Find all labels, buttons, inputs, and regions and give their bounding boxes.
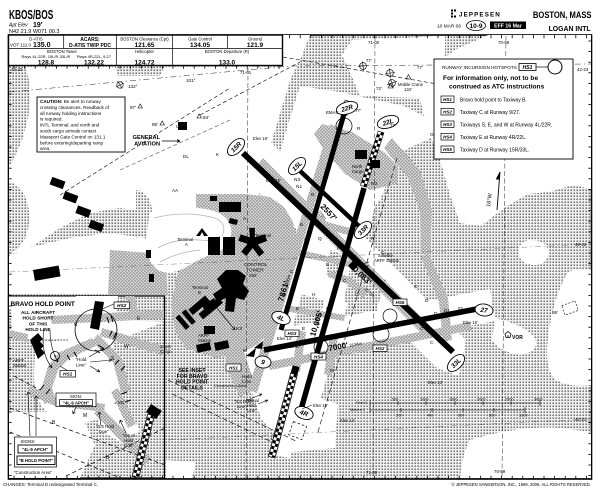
svg-text:HS1: HS1 [443,97,452,102]
svg-text:M1: M1 [118,400,125,405]
svg-text:BOSTON Departure (R): BOSTON Departure (R) [205,49,250,54]
svg-text:Line": Line" [99,429,109,434]
svg-text:O: O [304,237,308,243]
svg-text:Gate Control: Gate Control [188,37,212,42]
svg-text:1000: 1000 [519,414,527,418]
svg-text:M: M [83,413,87,419]
svg-text:"B HOLD POINT": "B HOLD POINT" [19,458,54,463]
svg-text:Cargo: Cargo [352,169,364,174]
svg-text:SIGNS:: SIGNS: [21,439,36,444]
svg-text:02: 02 [458,306,463,311]
svg-text:Helicopter: Helicopter [135,49,154,54]
svg-text:121.65: 121.65 [135,42,155,49]
svg-text:A: A [185,242,188,247]
svg-text:97': 97' [130,105,136,110]
svg-text:"Construction Area": "Construction Area" [14,470,52,475]
svg-text:70-59: 70-59 [498,40,510,45]
svg-text:all runway holding instruction: all runway holding instructions [40,111,102,116]
svg-text:HS2: HS2 [443,110,452,115]
svg-text:C: C [414,284,418,290]
svg-text:128.8: 128.8 [38,60,55,67]
svg-text:M: M [330,368,334,374]
svg-text:D: D [434,311,438,317]
svg-text:construed as ATC instructions: construed as ATC instructions [449,84,545,91]
svg-text:77': 77' [355,108,361,113]
svg-text:AVIATION: AVIATION [134,142,160,148]
svg-text:Line": Line" [124,443,134,448]
svg-text:C: C [290,269,294,275]
svg-text:Station: Station [198,338,212,343]
svg-text:CHANGES: Terminal D redesignat: CHANGES: Terminal D redesignated Termina… [3,482,98,487]
svg-text:K3: K3 [236,326,242,332]
svg-text:Ground: Ground [248,37,263,42]
svg-text:Line": Line" [237,404,247,409]
svg-text:F: F [337,246,340,252]
svg-text:D: D [425,298,429,304]
svg-text:HS1: HS1 [63,372,73,378]
svg-text:27: 27 [479,307,489,315]
svg-text:N42 21.9 W071 00.3: N42 21.9 W071 00.3 [9,29,59,35]
svg-text:"4L-9 APCH": "4L-9 APCH" [22,447,48,452]
svg-text:E: E [326,262,329,268]
svg-text:Taxiway E at Runway 4R/22L.: Taxiway E at Runway 4R/22L. [460,135,526,141]
svg-text:N: N [74,322,77,327]
svg-text:N3: N3 [371,181,377,187]
svg-text:84': 84' [203,115,209,120]
svg-text:HOLD SHORT: HOLD SHORT [23,316,54,321]
svg-text:72': 72' [376,86,382,91]
svg-text:500: 500 [392,398,398,402]
svg-text:before entering/departing ramp: before entering/departing ramp [40,140,104,145]
svg-text:US: US [176,124,182,129]
svg-text:Line": Line" [247,408,257,413]
svg-text:71-01: 71-01 [240,70,252,75]
svg-text:HOLD LINE: HOLD LINE [25,327,50,332]
svg-text:OF THIS: OF THIS [29,321,48,326]
svg-text:Elev 19': Elev 19' [253,136,268,141]
svg-text:42-23: 42-23 [11,67,23,72]
svg-text:Q: Q [318,236,322,242]
svg-text:Apt Elev: Apt Elev [8,23,28,29]
svg-text:Taxiways S, E, and W at Runway: Taxiways S, E, and W at Runway 4L/22R. [460,123,552,129]
svg-text:292': 292' [249,273,257,278]
svg-text:Elev 15': Elev 15' [463,320,478,325]
svg-text:SIGN:: SIGN: [70,394,82,399]
svg-text:132.22: 132.22 [84,60,104,67]
svg-text:Rwys 4R-22L, 9-27: Rwys 4R-22L, 9-27 [77,54,112,59]
svg-text:71-00: 71-00 [368,40,380,45]
svg-text:HS2: HS2 [376,346,385,351]
svg-text:C: C [326,306,330,312]
svg-text:2500: 2500 [505,398,513,402]
svg-text:N: N [330,158,334,164]
svg-text:134.05: 134.05 [190,42,210,49]
svg-text:HS1: HS1 [523,65,533,71]
svg-text:86': 86' [552,310,558,315]
svg-text:135.0: 135.0 [33,42,51,49]
svg-text:"Hold: "Hold [76,357,87,362]
svg-text:C: C [420,326,424,332]
svg-text:crossing clearances. Readback: crossing clearances. Readback of [40,105,110,110]
svg-text:E: E [296,306,299,312]
svg-text:W: W [124,344,129,350]
svg-text:C: C [430,340,434,346]
svg-text:Feet 0: Feet 0 [356,401,367,405]
svg-text:JEPPESEN: JEPPESEN [459,12,501,19]
svg-text:is required.: is required. [40,117,63,122]
svg-text:1000: 1000 [420,398,428,402]
svg-text:Cargo: Cargo [160,349,172,354]
svg-text:For information only, not to b: For information only, not to be [443,75,538,82]
svg-text:77': 77' [390,123,396,128]
svg-text:EFF 16 Mar: EFF 16 Mar [494,24,522,30]
svg-text:H: H [312,292,316,298]
svg-text:ARFF Station: ARFF Station [374,258,400,263]
svg-text:Meters 0: Meters 0 [350,408,365,412]
svg-text:E: E [302,326,305,332]
svg-text:south cargo arrivals contact: south cargo arrivals contact [40,129,97,134]
svg-text:HS3: HS3 [443,122,452,127]
svg-text:INTL Terminal, and north and: INTL Terminal, and north and [40,123,100,128]
svg-text:Elev 15': Elev 15' [266,178,281,183]
svg-text:VOT 111.0: VOT 111.0 [10,43,32,48]
svg-text:77': 77' [366,58,372,63]
svg-text:19': 19' [33,22,43,29]
svg-text:42-23: 42-23 [577,67,589,72]
svg-text:85': 85' [152,122,158,127]
svg-text:121.9: 121.9 [247,42,264,49]
svg-text:600: 600 [458,414,464,418]
svg-text:"4L-9 APCH": "4L-9 APCH" [63,400,89,405]
svg-text:© JEPPESEN SANDERSON, INC., 19: © JEPPESEN SANDERSON, INC., 1998, 2006. … [452,482,591,487]
svg-text:D-ATIS TWIP PDC: D-ATIS TWIP PDC [69,43,111,49]
svg-text:HS4: HS4 [314,354,323,359]
svg-text:200: 200 [396,414,402,418]
svg-text:10-9: 10-9 [469,23,482,30]
svg-text:BOSTON, MASS: BOSTON, MASS [533,9,592,20]
svg-text:CAUTION: Be alert to runway: CAUTION: Be alert to runway [40,99,101,104]
svg-text:800: 800 [489,414,495,418]
svg-text:M: M [243,348,247,354]
svg-text:HS5: HS5 [396,300,405,305]
svg-text:134': 134' [404,87,412,92]
svg-text:B: B [283,292,286,298]
svg-text:B: B [198,290,201,295]
svg-text:77': 77' [417,65,423,70]
svg-text:D-ATIS: D-ATIS [29,37,43,42]
svg-text:DL: DL [183,154,189,159]
svg-text:71-00: 71-00 [366,470,378,475]
svg-text:N: N [311,192,315,198]
svg-text:VOR: VOR [512,335,523,341]
svg-text:CONTROL: CONTROL [244,262,268,268]
svg-text:Massport Gate Control on 131.1: Massport Gate Control on 131.1 [40,134,106,139]
svg-text:HS1: HS1 [229,365,238,370]
svg-text:D: D [308,380,312,386]
svg-text:C: C [263,238,266,243]
svg-text:N3: N3 [294,177,300,183]
svg-text:C: C [343,278,347,284]
svg-text:DETAILS: DETAILS [181,385,203,391]
svg-text:EMAS: EMAS [326,110,339,115]
svg-text:124.72: 124.72 [135,60,155,67]
svg-text:Rwys 4L-22R, 15L/R-33L/R: Rwys 4L-22R, 15L/R-33L/R [22,54,71,59]
svg-text:400: 400 [427,414,433,418]
svg-text:AA: AA [172,188,179,193]
svg-text:HS5: HS5 [443,147,452,152]
svg-text:HS4: HS4 [443,135,452,140]
svg-text:133.0: 133.0 [219,60,236,67]
svg-text:Bravo hold point to Taxiway B.: Bravo hold point to Taxiway B. [460,98,527,104]
svg-text:C: C [381,250,385,256]
svg-text:2000: 2000 [477,398,485,402]
svg-text:1500: 1500 [449,398,457,402]
svg-text:N1: N1 [296,184,302,190]
svg-text:Line": Line" [76,363,87,368]
svg-text:ALL AIRCRAFT: ALL AIRCRAFT [21,310,55,315]
svg-text:D1: D1 [444,308,450,313]
svg-text:Elev 13': Elev 13' [428,380,443,385]
svg-text:GENERAL: GENERAL [133,135,161,141]
svg-text:area.: area. [40,146,50,151]
svg-text:LOGAN INTL: LOGAN INTL [549,24,592,33]
svg-text:70-59: 70-59 [494,469,506,474]
svg-text:RUNWAY INCURSION HOTSPOTS: RUNWAY INCURSION HOTSPOTS [442,65,517,70]
svg-text:HS2: HS2 [117,303,127,309]
svg-text:F: F [300,260,303,266]
svg-text:132°: 132° [128,84,138,89]
svg-text:Elev 14': Elev 14' [340,418,355,423]
svg-text:3000: 3000 [534,398,542,402]
svg-text:10 MAR 06: 10 MAR 06 [437,24,461,30]
svg-text:E: E [317,321,320,327]
svg-text:B: B [300,222,303,228]
svg-text:HS3: HS3 [288,331,297,336]
svg-text:42-21: 42-21 [575,417,587,422]
svg-text:Station: Station [13,363,27,368]
svg-text:Construction Area: Construction Area [214,383,247,388]
svg-text:Taxiway D at Runway 15R/33L.: Taxiway D at Runway 15R/33L. [460,148,529,154]
svg-text:R: R [357,126,361,132]
svg-text:BRAVO HOLD POINT: BRAVO HOLD POINT [10,301,74,308]
svg-text:Taxiway C at Runway 9/27.: Taxiway C at Runway 9/27. [460,110,520,116]
svg-text:101°: 101° [186,78,196,83]
svg-text:Elev 17': Elev 17' [286,344,301,349]
svg-text:BOSTON Clearance (Cpt): BOSTON Clearance (Cpt) [120,37,169,42]
svg-text:KBOS/BOS: KBOS/BOS [9,8,53,22]
svg-text:42-22: 42-22 [575,242,587,247]
